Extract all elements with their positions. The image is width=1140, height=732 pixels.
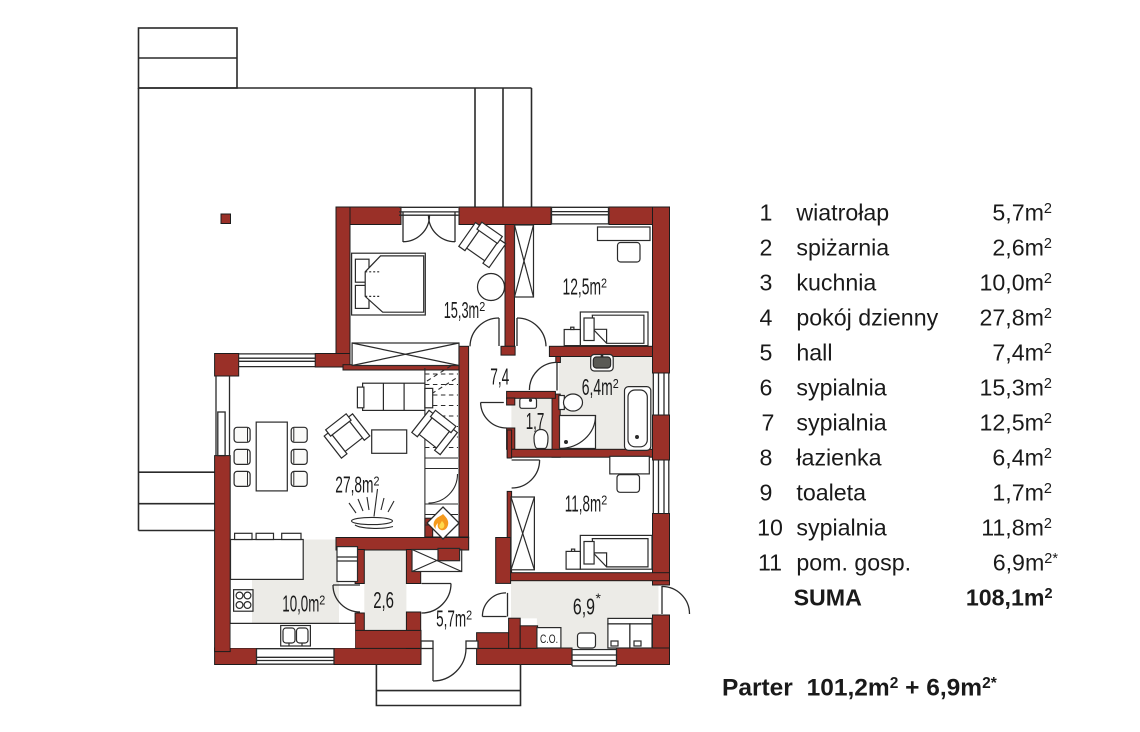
svg-text:*: * <box>596 590 602 606</box>
svg-text:1: 1 <box>760 200 773 226</box>
svg-text:wiatrołap: wiatrołap <box>795 200 889 226</box>
svg-text:C.O.: C.O. <box>540 634 558 646</box>
svg-text:łazienka: łazienka <box>796 445 881 471</box>
svg-text:SUMA: SUMA <box>794 585 863 611</box>
svg-text:27,8m: 27,8m <box>335 471 373 497</box>
svg-text:2,6m2: 2,6m2 <box>992 235 1052 261</box>
svg-text:pokój dzienny: pokój dzienny <box>796 305 938 331</box>
svg-text:6,4m2: 6,4m2 <box>992 445 1052 471</box>
svg-text:hall: hall <box>796 340 832 366</box>
svg-text:6,9: 6,9 <box>573 594 595 620</box>
svg-text:pom. gosp.: pom. gosp. <box>796 550 911 576</box>
svg-text:11: 11 <box>758 550 782 576</box>
svg-text:5,7m: 5,7m <box>436 605 466 631</box>
svg-text:15,3m: 15,3m <box>444 297 480 323</box>
svg-text:108,1m2: 108,1m2 <box>966 585 1053 611</box>
svg-text:10,0m2: 10,0m2 <box>979 270 1052 296</box>
svg-text:2: 2 <box>374 473 380 488</box>
svg-text:Parter: Parter <box>722 675 793 702</box>
svg-text:sypialnia: sypialnia <box>796 375 886 401</box>
svg-text:2: 2 <box>760 235 773 261</box>
svg-text:10: 10 <box>757 515 783 541</box>
svg-text:2: 2 <box>601 276 607 291</box>
svg-text:2: 2 <box>479 299 485 314</box>
svg-text:sypialnia: sypialnia <box>796 515 886 541</box>
svg-text:6,4m: 6,4m <box>582 374 613 400</box>
svg-text:4: 4 <box>760 305 773 331</box>
svg-text:2: 2 <box>466 607 472 622</box>
svg-text:12,5m2: 12,5m2 <box>979 410 1052 436</box>
svg-text:6,9m2*: 6,9m2* <box>993 550 1059 576</box>
svg-text:2: 2 <box>613 376 619 391</box>
svg-text:7,4: 7,4 <box>490 364 509 390</box>
svg-text:1,7: 1,7 <box>526 408 545 434</box>
svg-text:kuchnia: kuchnia <box>796 270 876 296</box>
svg-text:2,6: 2,6 <box>373 587 394 613</box>
svg-text:2: 2 <box>319 593 325 608</box>
svg-text:1,7m2: 1,7m2 <box>992 480 1052 506</box>
svg-text:sypialnia: sypialnia <box>796 410 886 436</box>
svg-text:toaleta: toaleta <box>796 480 866 506</box>
svg-text:6: 6 <box>760 375 773 401</box>
svg-text:9: 9 <box>760 480 773 506</box>
svg-text:11,8m: 11,8m <box>565 491 601 517</box>
svg-text:7: 7 <box>762 410 775 436</box>
svg-text:5: 5 <box>760 340 773 366</box>
svg-text:3: 3 <box>760 270 773 296</box>
svg-text:8: 8 <box>760 445 773 471</box>
svg-text:101,2m2 + 6,9m2*: 101,2m2 + 6,9m2* <box>807 675 998 702</box>
svg-text:27,8m2: 27,8m2 <box>979 305 1052 331</box>
svg-text:7,4m2: 7,4m2 <box>992 340 1052 366</box>
svg-text:2: 2 <box>601 493 607 508</box>
svg-text:spiżarnia: spiżarnia <box>796 235 889 261</box>
svg-text:10,0m: 10,0m <box>282 591 319 617</box>
svg-text:15,3m2: 15,3m2 <box>979 375 1052 401</box>
svg-text:5,7m2: 5,7m2 <box>992 200 1052 226</box>
svg-text:12,5m: 12,5m <box>563 274 602 300</box>
svg-text:11,8m2: 11,8m2 <box>981 515 1052 541</box>
